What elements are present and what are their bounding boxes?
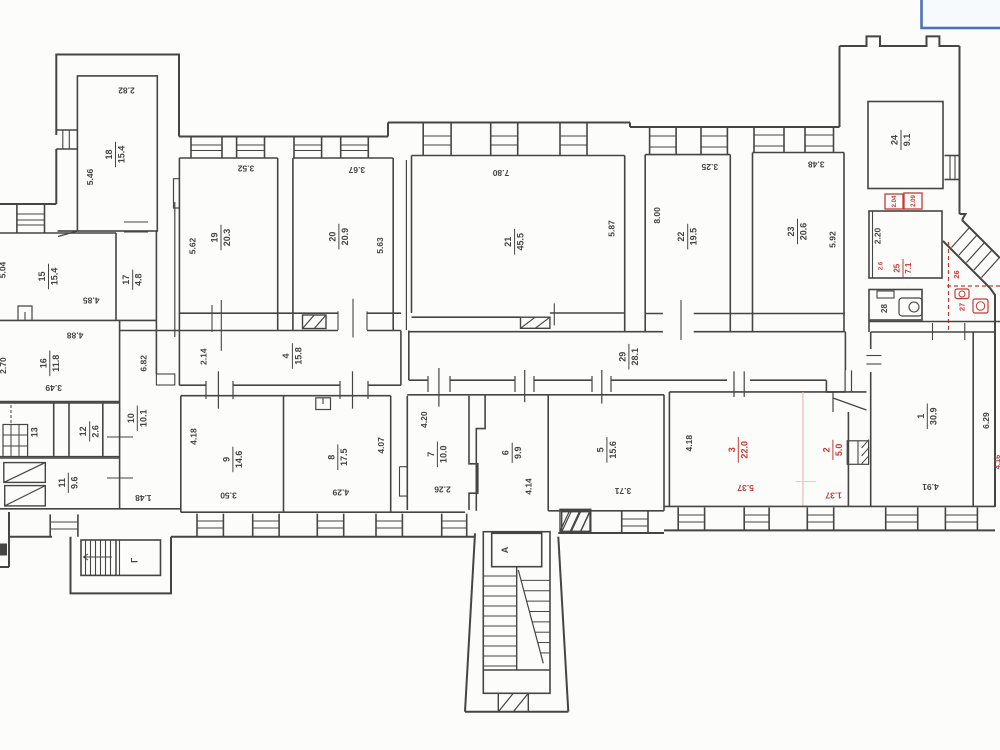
svg-text:9: 9: [221, 457, 231, 462]
svg-text:10.1: 10.1: [138, 410, 148, 428]
svg-text:13: 13: [30, 427, 40, 437]
svg-text:4.29: 4.29: [332, 487, 349, 497]
svg-text:4.91: 4.91: [922, 482, 939, 492]
svg-text:2.20: 2.20: [872, 227, 882, 244]
svg-text:6.29: 6.29: [981, 412, 991, 429]
svg-text:5: 5: [595, 447, 605, 452]
svg-text:7.1: 7.1: [904, 262, 913, 274]
svg-text:25: 25: [893, 263, 902, 272]
svg-text:5.63: 5.63: [375, 237, 385, 254]
svg-text:11.8: 11.8: [51, 355, 61, 372]
svg-text:22: 22: [676, 232, 686, 242]
svg-text:8: 8: [326, 455, 336, 460]
svg-text:3.71: 3.71: [614, 486, 631, 496]
svg-text:9.6: 9.6: [69, 477, 79, 490]
svg-text:3.52: 3.52: [237, 164, 254, 174]
svg-text:5.87: 5.87: [606, 220, 616, 237]
svg-text:3.49: 3.49: [45, 383, 62, 393]
svg-text:9.1: 9.1: [902, 134, 912, 147]
svg-text:2.14: 2.14: [199, 348, 209, 365]
svg-text:45.5: 45.5: [516, 233, 526, 251]
svg-text:5.04: 5.04: [0, 261, 7, 278]
svg-text:10.0: 10.0: [438, 446, 448, 464]
svg-text:15.6: 15.6: [608, 441, 618, 459]
svg-text:2.04: 2.04: [892, 195, 898, 207]
svg-text:2.09: 2.09: [911, 195, 917, 207]
svg-text:4.16: 4.16: [993, 455, 1000, 470]
svg-text:1.48: 1.48: [135, 493, 152, 503]
svg-text:1: 1: [916, 414, 926, 419]
svg-text:2.70: 2.70: [0, 357, 8, 374]
svg-text:15.4: 15.4: [50, 268, 60, 286]
svg-text:6.82: 6.82: [138, 355, 148, 372]
svg-text:2.26: 2.26: [434, 485, 451, 495]
svg-text:5.46: 5.46: [85, 168, 95, 185]
svg-text:17: 17: [121, 275, 131, 285]
svg-text:3.48: 3.48: [808, 160, 825, 170]
svg-text:15: 15: [37, 271, 47, 281]
svg-text:4.20: 4.20: [419, 411, 429, 428]
svg-text:2.6: 2.6: [91, 425, 101, 438]
svg-text:19: 19: [210, 232, 220, 242]
svg-text:7.80: 7.80: [492, 168, 509, 178]
svg-text:4.85: 4.85: [83, 295, 100, 305]
svg-text:18: 18: [104, 149, 114, 159]
svg-text:5.62: 5.62: [188, 237, 198, 254]
svg-text:2.82: 2.82: [118, 85, 135, 95]
svg-text:26: 26: [952, 270, 961, 278]
svg-text:12: 12: [78, 426, 88, 436]
svg-text:3.25: 3.25: [701, 162, 718, 172]
svg-text:11: 11: [57, 478, 67, 488]
svg-text:27: 27: [958, 303, 967, 311]
svg-text:24: 24: [890, 135, 900, 145]
svg-text:5.37: 5.37: [737, 483, 754, 493]
svg-text:3: 3: [727, 447, 737, 452]
svg-text:2: 2: [821, 447, 831, 452]
svg-text:20.3: 20.3: [222, 229, 232, 247]
svg-text:4: 4: [281, 353, 291, 358]
svg-text:19.5: 19.5: [689, 228, 699, 246]
svg-text:А: А: [500, 546, 510, 553]
svg-text:29: 29: [617, 352, 627, 362]
svg-text:21: 21: [503, 237, 513, 247]
svg-text:5.0: 5.0: [834, 444, 844, 457]
svg-text:20: 20: [327, 232, 337, 242]
svg-text:14.6: 14.6: [234, 451, 244, 469]
svg-text:28: 28: [880, 304, 889, 313]
svg-text:8.00: 8.00: [652, 207, 662, 224]
svg-text:17.5: 17.5: [339, 448, 349, 466]
svg-text:4.88: 4.88: [67, 331, 84, 341]
svg-text:20.9: 20.9: [340, 228, 350, 246]
svg-text:15.4: 15.4: [117, 146, 127, 164]
svg-text:5.92: 5.92: [828, 231, 838, 248]
svg-text:28.1: 28.1: [630, 348, 640, 366]
svg-text:16: 16: [38, 358, 48, 368]
svg-text:2.6: 2.6: [879, 261, 885, 270]
svg-text:23: 23: [786, 226, 796, 236]
svg-text:4.18: 4.18: [188, 428, 198, 445]
svg-text:15.8: 15.8: [293, 347, 303, 365]
svg-text:7: 7: [426, 452, 436, 457]
svg-text:9.9: 9.9: [513, 447, 523, 460]
svg-text:30.9: 30.9: [928, 408, 938, 426]
svg-text:22.0: 22.0: [739, 441, 749, 459]
svg-text:4.14: 4.14: [523, 478, 533, 495]
svg-text:6: 6: [501, 450, 511, 455]
svg-text:1.37: 1.37: [825, 490, 842, 500]
svg-text:4.18: 4.18: [684, 435, 694, 452]
svg-text:3.50: 3.50: [220, 490, 237, 500]
svg-text:3.67: 3.67: [348, 165, 365, 175]
svg-text:20.6: 20.6: [799, 223, 809, 241]
svg-text:Г: Г: [129, 558, 139, 563]
svg-text:4.8: 4.8: [134, 273, 144, 286]
svg-text:4.07: 4.07: [376, 437, 386, 454]
svg-text:10: 10: [126, 413, 136, 423]
